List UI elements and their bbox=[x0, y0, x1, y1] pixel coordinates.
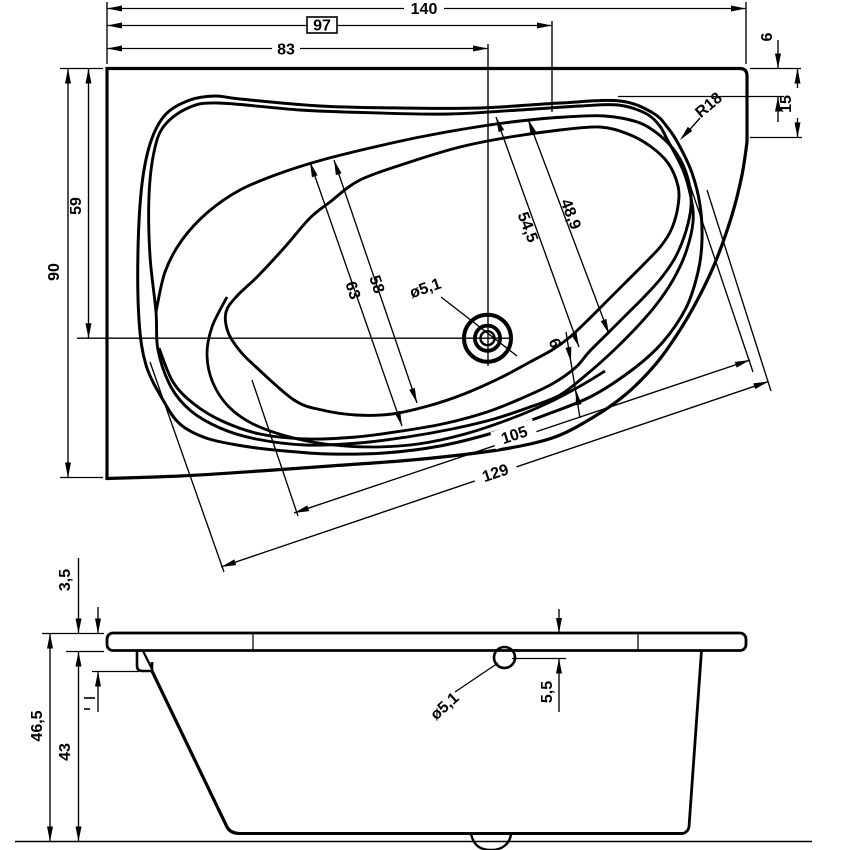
svg-text:46,5: 46,5 bbox=[29, 710, 46, 741]
svg-text:90: 90 bbox=[46, 263, 63, 281]
svg-text:83: 83 bbox=[277, 42, 295, 59]
svg-text:6: 6 bbox=[759, 32, 776, 41]
svg-text:97: 97 bbox=[313, 18, 331, 35]
svg-text:43: 43 bbox=[57, 743, 74, 761]
svg-text:15: 15 bbox=[778, 95, 795, 113]
svg-text:5,5: 5,5 bbox=[539, 681, 556, 703]
svg-text:3,5: 3,5 bbox=[57, 569, 74, 591]
svg-text:59: 59 bbox=[68, 197, 85, 215]
svg-text:140: 140 bbox=[411, 1, 438, 18]
